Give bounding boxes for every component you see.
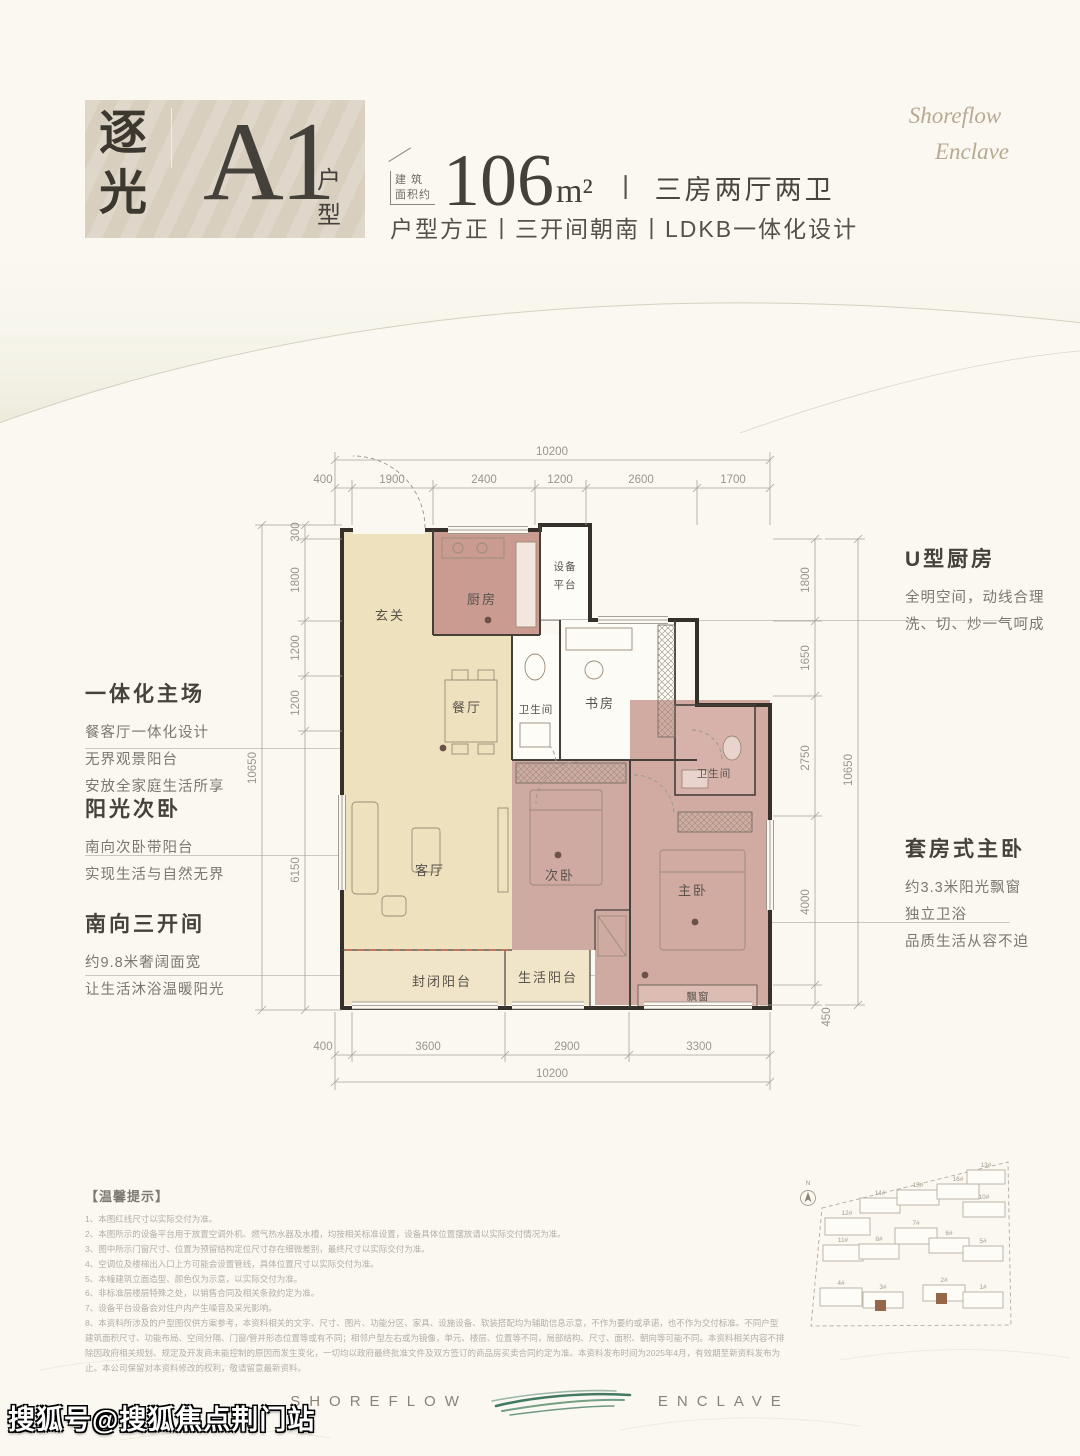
- annotation-line: 品质生活从容不迫: [905, 929, 1075, 956]
- disclaimer-item: 5、本幢建筑立面造型、颜色仅为示意，以实际交付为准。: [85, 1272, 785, 1287]
- annotation-line: 约3.3米阳光飘窗: [905, 875, 1075, 902]
- poster-page: 逐 光 A1 户型 建 筑 面积约 106 m² 丨 三房两厅两卫 户型方正丨三…: [0, 0, 1080, 1456]
- dim-bottom-0: 400: [313, 1041, 332, 1053]
- building-label: 16#: [953, 1176, 964, 1183]
- dim-right-1: 1650: [800, 645, 812, 671]
- room-label-entry: 玄关: [375, 608, 405, 623]
- building-label: 7#: [912, 1220, 920, 1227]
- highlighted-building: [875, 1300, 886, 1311]
- layout-spec: 三房两厅两卫: [655, 168, 835, 207]
- room-label-bedroom2: 次卧: [545, 868, 575, 883]
- dim-bottom-2: 2900: [554, 1041, 580, 1053]
- unit-code-label: 户型: [317, 160, 365, 230]
- dim-right-overall: 10650: [843, 754, 855, 786]
- annotation-u-kitchen: U型厨房 全明空间，动线合理 洗、切、炒一气呵成: [905, 543, 1075, 639]
- building-label: 15#: [913, 1182, 924, 1189]
- room-label-living: 客厅: [415, 863, 445, 878]
- disclaimer-title: 【温馨提示】: [85, 1186, 785, 1205]
- disclaimer-item: 1、本图红线尺寸以实际交付为准。: [85, 1212, 785, 1227]
- brand-script: Shoreflow Enclave: [895, 98, 1015, 169]
- project-logo-text: 逐 光: [99, 104, 149, 225]
- dim-top-1: 1900: [379, 474, 405, 486]
- unit-code: A1: [203, 104, 332, 222]
- decorative-arcs: [0, 255, 1080, 435]
- area-prefix: 建 筑 面积约: [390, 171, 435, 205]
- building-label: 11#: [838, 1237, 849, 1244]
- room-label-study: 书房: [585, 696, 615, 711]
- room-label-balcony-life: 生活阳台: [518, 970, 578, 985]
- dim-right-4: 450: [821, 1007, 833, 1026]
- room-label-bath1: 卫生间: [519, 703, 554, 716]
- brand-line1: Shoreflow: [895, 98, 1015, 134]
- room-label-equipment-1: 设备: [554, 560, 577, 573]
- disclaimer-item: 4、空调位及楼梯出入口上方可能会设置管线，具体位置尺寸以实际交付为准。: [85, 1257, 785, 1272]
- north-compass: N: [801, 1180, 816, 1206]
- room-label-balcony-enclosed: 封闭阳台: [412, 974, 472, 989]
- building-label: 10#: [979, 1194, 990, 1201]
- room-label-bay-window: 飘窗: [687, 990, 710, 1003]
- area-value: 106: [443, 148, 554, 215]
- dim-right-0: 1800: [800, 567, 812, 593]
- room-label-bath2: 卫生间: [697, 767, 732, 780]
- building-label: 5#: [979, 1238, 987, 1245]
- building-label: 2#: [940, 1277, 948, 1284]
- building-label: 14#: [875, 1190, 886, 1197]
- annotation-title: U型厨房: [905, 543, 1075, 573]
- area-prefix-line2: 面积约: [395, 188, 431, 203]
- watermark: 搜狐号@搜狐焦点荆门站: [8, 1398, 315, 1437]
- disclaimer-item: 6、非标准层楼层特殊之处，以销售合同及相关条款约定为准。: [85, 1286, 785, 1301]
- dim-top-3: 1200: [547, 474, 573, 486]
- building-label: 8#: [875, 1236, 883, 1243]
- brand-line2: Enclave: [895, 134, 1015, 170]
- disclaimer-item: 7、设备平台设备会对住户内产生噪音及采光影响。: [85, 1301, 785, 1316]
- room-label-kitchen: 厨房: [467, 592, 497, 607]
- disclaimer-item: 3、图中所示门窗尺寸、位置为预留结构定位尺寸存在细微差别，最终尺寸以实际交付为准…: [85, 1242, 785, 1257]
- dim-right-2: 2750: [800, 745, 812, 771]
- annotation-line: 独立卫浴: [905, 902, 1075, 929]
- dim-right-3: 4000: [800, 889, 812, 915]
- footer-brand-right: ENCLAVE: [658, 1393, 790, 1410]
- area-prefix-line1: 建 筑: [395, 173, 431, 188]
- dim-left-4: 6150: [290, 857, 302, 883]
- room-label-master: 主卧: [678, 883, 708, 898]
- building-label: 12#: [842, 1210, 853, 1217]
- dim-left-overall: 10650: [247, 752, 259, 784]
- dim-bottom-3: 3300: [686, 1041, 712, 1053]
- north-label: N: [806, 1180, 811, 1187]
- dim-top-overall: 10200: [536, 446, 568, 458]
- building-label: 3#: [879, 1284, 887, 1291]
- spec-divider: 丨: [613, 168, 639, 205]
- dim-left-3: 1200: [290, 690, 302, 716]
- room-label-equipment-2: 平台: [554, 578, 577, 591]
- annotation-line: 全明空间，动线合理: [905, 585, 1075, 612]
- annotation-title: 套房式主卧: [905, 833, 1075, 863]
- building-label: 13#: [981, 1162, 992, 1169]
- dim-left-2: 1200: [290, 635, 302, 661]
- building-label: 6#: [945, 1230, 953, 1237]
- dim-bottom-overall: 10200: [536, 1068, 568, 1080]
- project-logo-box: 逐 光 A1 户型: [85, 100, 365, 238]
- annotation-master-suite: 套房式主卧 约3.3米阳光飘窗 独立卫浴 品质生活从容不迫: [905, 833, 1075, 955]
- dim-top-0: 400: [313, 474, 332, 486]
- dim-left-1: 1800: [290, 567, 302, 593]
- building-label: 1#: [979, 1284, 987, 1291]
- disclaimer-item: 2、本图所示的设备平台用于放置空调外机、燃气热水器及水槽，均按相关标准设置，设备…: [85, 1227, 785, 1242]
- dim-top-4: 2600: [628, 474, 654, 486]
- dim-top-5: 1700: [720, 474, 746, 486]
- logo-char-1: 逐: [99, 104, 149, 164]
- room-label-dining: 餐厅: [452, 700, 482, 715]
- dim-left-0: 300: [290, 522, 302, 541]
- dim-bottom-1: 3600: [415, 1041, 441, 1053]
- area-unit: m²: [556, 173, 593, 211]
- annotation-line: 洗、切、炒一气呵成: [905, 612, 1075, 639]
- logo-divider: [171, 108, 172, 168]
- building-label: 4#: [837, 1280, 845, 1287]
- logo-char-2: 光: [99, 164, 149, 224]
- wave-logo-icon: [488, 1384, 638, 1418]
- footer-brand-left: SHOREFLOW: [290, 1393, 468, 1410]
- tagline: 户型方正丨三开间朝南丨LDKB一体化设计: [390, 210, 858, 244]
- dim-top-2: 2400: [471, 474, 497, 486]
- highlighted-building: [936, 1293, 947, 1304]
- floorplan-drawing: 玄关 厨房 设备 平台 餐厅 卫生间 书房 卫生间 客厅 次卧 主卧 封闭阳台 …: [230, 430, 890, 1120]
- area-headline: 建 筑 面积约 106 m² 丨 三房两厅两卫: [390, 148, 835, 215]
